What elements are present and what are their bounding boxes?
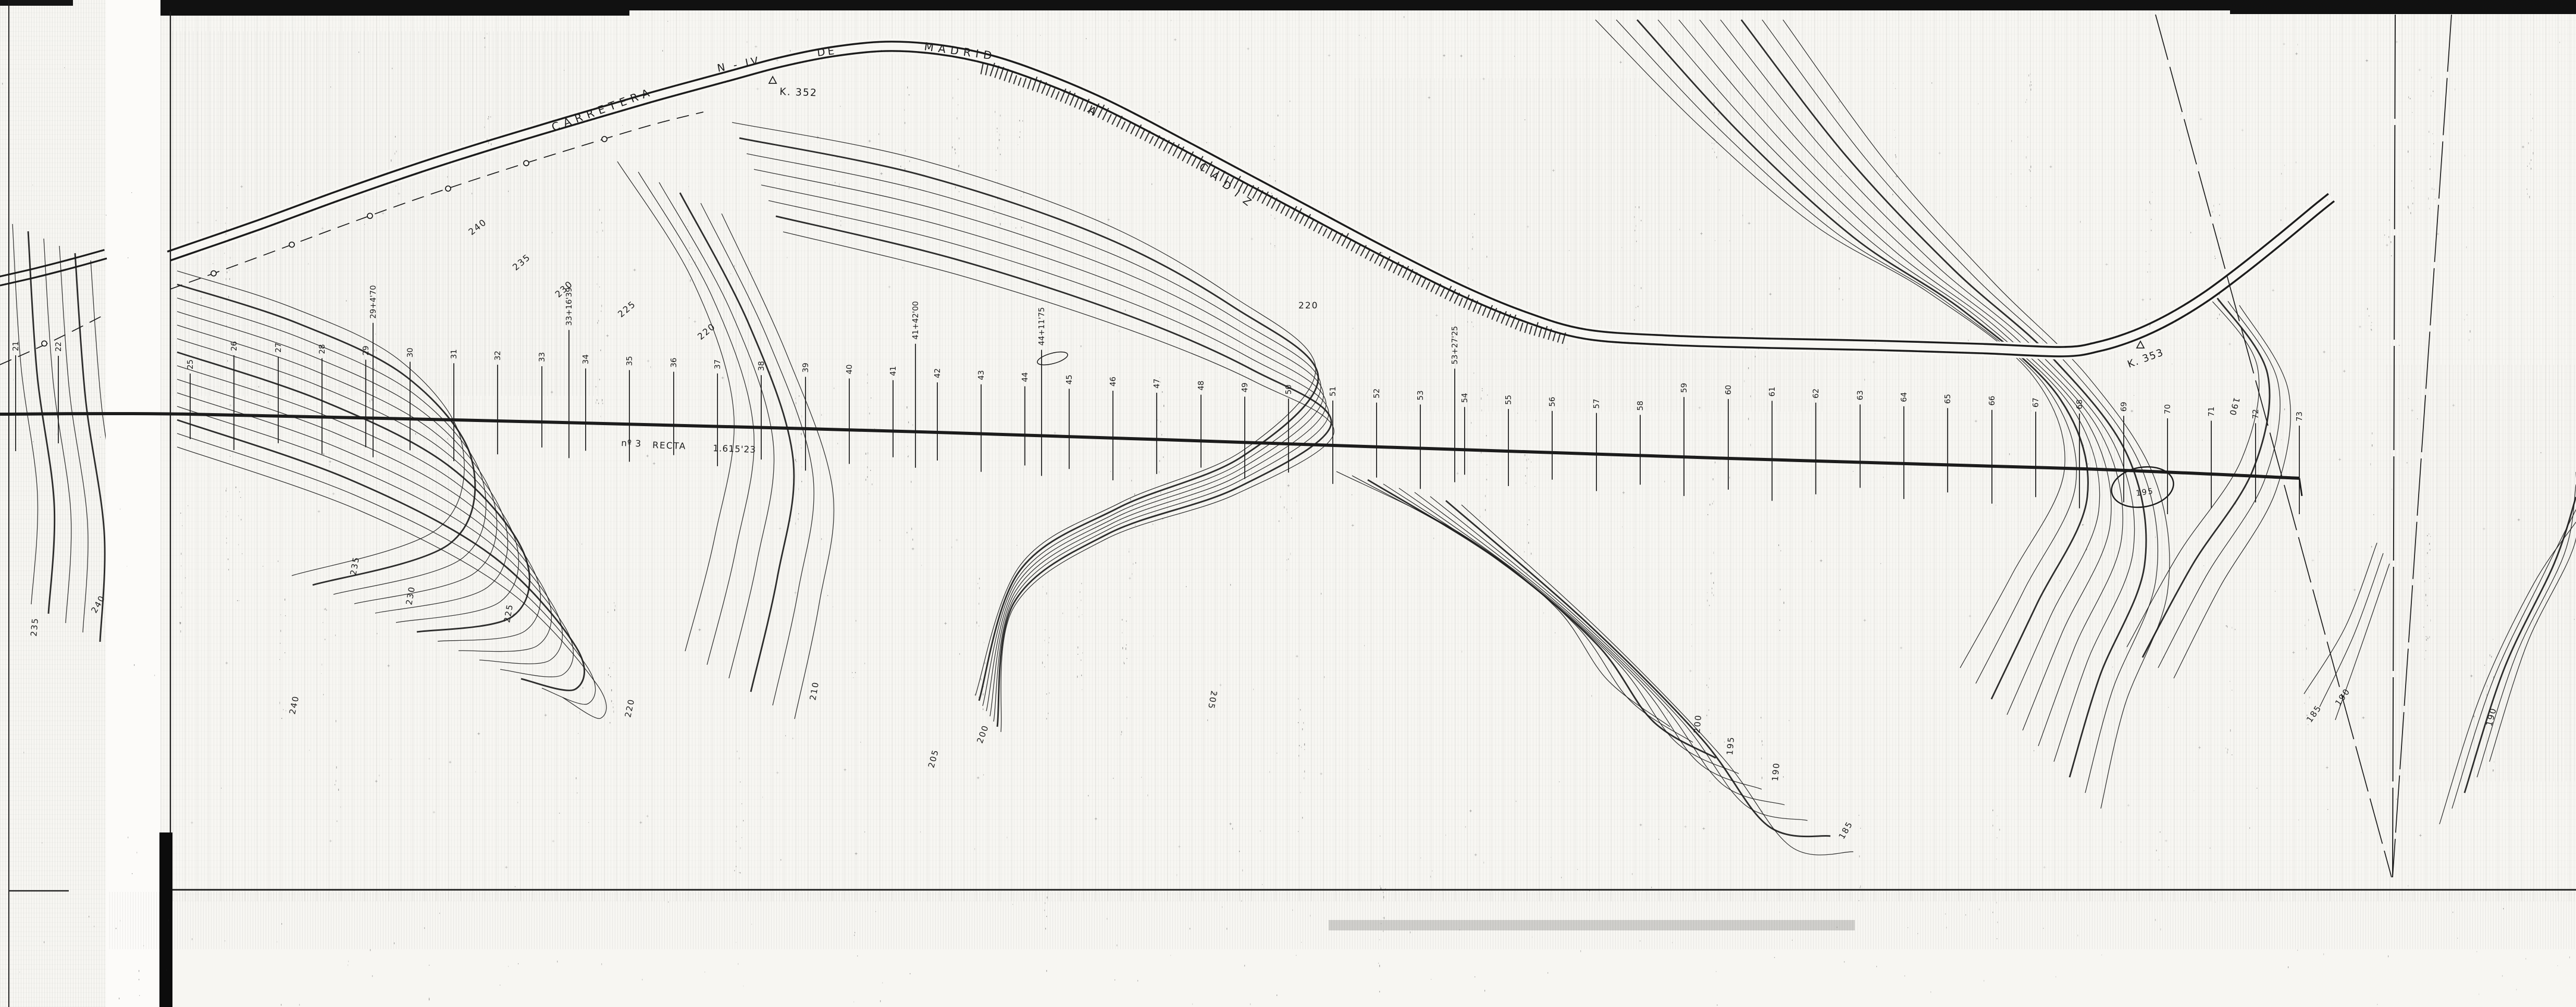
contour-label: 240 [89,593,107,615]
contour-label: 210 [808,680,821,701]
contour-line [1762,20,2158,793]
contour-line [1700,20,2123,746]
contour-label: 195 [1725,736,1736,755]
utility-pole-circle [602,136,607,142]
contour-line [783,232,1334,732]
contour-label: 225 [616,299,638,320]
station-label: 52 [1372,389,1381,399]
contour-label: 230 [404,585,417,605]
contour-label: 190 [1770,762,1781,781]
closed-contour-small [1036,350,1069,368]
station-label: 61 [1767,387,1777,396]
contour-line [776,216,1331,727]
station-label: 57 [1592,399,1601,408]
contour-label: 225 [502,603,515,623]
road-name-label: CARRETERA [550,85,655,133]
station-label: 62 [1811,389,1820,399]
scan-smudge [1329,920,1855,930]
station-label: 25 [185,359,195,369]
station-label: 26 [229,341,239,351]
contour-label: 200 [1692,714,1703,734]
km-marker-label: K. 353 [2126,346,2165,370]
station-label: 21 [11,341,20,351]
contour-label: 235 [29,617,40,637]
contour-line [1352,476,1693,742]
station-label: 71 [2207,407,2216,417]
station-label: 41+42'00 [911,301,920,340]
station-label: 44 [1020,372,1030,382]
contour-label: 190 [2484,706,2499,727]
km-marker-label: K. 352 [779,86,818,99]
station-label: 58 [1636,401,1645,411]
station-label: 68 [2075,400,2084,409]
station-label: 39 [801,363,810,372]
contour-label: 235 [511,252,532,273]
station-label: 53 [1416,390,1425,400]
contour-line [1368,480,1716,758]
station-label: 65 [1943,394,1952,404]
contour-label: 235 [348,555,361,576]
contour-line [2320,553,2383,707]
contour-line [2304,543,2377,694]
contour-label: 205 [926,748,941,769]
contour-line [1720,20,2135,762]
station-label: 53+27'25 [1450,326,1459,365]
station-label: 49 [1240,382,1249,392]
contour-line [1679,20,2111,730]
station-label: 32 [493,351,502,360]
alignment-label: nº 3 [621,438,642,449]
contour-line [761,185,1326,716]
station-label: 70 [2163,404,2172,414]
contour-line [617,161,734,651]
contour-line [2490,472,2576,762]
station-label: 42 [933,368,942,378]
station-label: 29 [361,345,370,355]
station-label: 73 [2295,412,2304,421]
map-labels: CARRETERAN - IVDEMADRIDAC A D I ZK. 352K… [29,40,2498,841]
road-madrid-cadiz [0,42,2334,356]
station-label: 27 [274,343,283,353]
utility-line [0,112,703,365]
station-label: 60 [1724,385,1733,395]
contour-line [177,406,573,677]
contour-line [44,239,71,623]
station-label: 41 [888,366,898,376]
utility-pole-circle [211,271,216,276]
station-label: 54 [1460,393,1469,403]
contour-line [177,271,464,576]
fold-line-vertical [2393,15,2395,877]
station-label: 34 [581,354,590,364]
station-label: 30 [405,347,415,357]
station-label: 37 [713,359,722,369]
contour-line [28,231,55,614]
station-label: 43 [976,370,986,380]
contour-line [732,122,1316,695]
scan-edge-blotch [159,832,172,1007]
match-line-left [2156,15,2392,877]
station-label: 69 [2119,402,2128,412]
station-label: 63 [1855,390,1865,400]
station-label: 56 [1547,397,1557,407]
contour-line [59,246,88,632]
contour-line [75,253,105,642]
station-label: 40 [845,364,854,374]
utility-pole-circle [367,213,373,218]
contour-line [2174,305,2290,678]
station-label: 38 [757,361,766,371]
contour-line [2158,301,2280,668]
contour-line [722,214,834,719]
station-label: 55 [1504,395,1513,405]
station-label: 46 [1108,377,1118,387]
utility-pole-circle [289,242,294,247]
embankment-hachures [981,63,1566,344]
contour-label: 200 [975,724,990,745]
station-label: 29+4'70 [368,285,378,318]
station-label: 44+11'75 [1037,307,1046,346]
contour-line [1383,484,1739,774]
utility-pole-circle [524,160,529,166]
contour-line [2477,484,2576,777]
scan-top-bar-strip [0,0,73,6]
contour-line [177,447,606,718]
station-label: 72 [2251,409,2260,419]
contour-label: 185 [2305,703,2324,724]
contour-line [1783,20,2170,809]
survey-centerline [0,414,2299,478]
station-label: 35 [625,356,634,366]
alignment-label: 1.615'23 [713,443,757,455]
contour-label: 190 [2227,396,2242,417]
station-label: 45 [1064,375,1074,384]
station-label: 50 [1284,384,1293,394]
contour-label: 220 [623,698,636,718]
contour-label: 205 [1206,690,1219,710]
alignment-label: RECTA [652,440,687,452]
sheet-borders [0,0,2576,1007]
station-label: 22 [54,342,63,352]
station-label: 64 [1899,392,1909,402]
road-name-label: DE [816,44,838,59]
station-label: 33 [537,352,547,362]
contour-line [1462,505,1853,855]
station-label: 67 [2031,397,2040,407]
contour-label: 185 [1837,819,1855,841]
utility-pole-circle [445,186,451,191]
contour-label: 195 [2135,486,2154,498]
contour-label: 240 [287,694,301,715]
station-label: 28 [317,344,327,354]
contour-lines-strip [13,224,121,651]
match-line-right [2393,15,2451,877]
km-triangle-icon [769,77,776,83]
station-label: 31 [449,349,459,359]
scanned-topographic-plan: 252627282929+4'703031323333+16'393435363… [0,0,2576,1007]
contour-label: 220 [1298,301,1318,311]
scan-speckles [2,16,2574,1006]
contour-label: 240 [467,217,489,238]
contour-label: 220 [696,321,717,342]
station-label: 47 [1152,379,1161,389]
station-label: 59 [1679,383,1689,393]
contour-line [2439,522,2576,824]
contour-line [659,182,774,678]
station-label: 48 [1196,381,1206,391]
station-label: 51 [1328,387,1337,396]
topo-map-svg: 252627282929+4'703031323333+16'393435363… [0,0,2576,1007]
survey-centerline-group: 252627282929+4'703031323333+16'393435363… [0,285,2304,514]
station-label: 66 [1987,396,1997,406]
station-label: 36 [669,358,678,368]
contour-line [754,169,1323,711]
